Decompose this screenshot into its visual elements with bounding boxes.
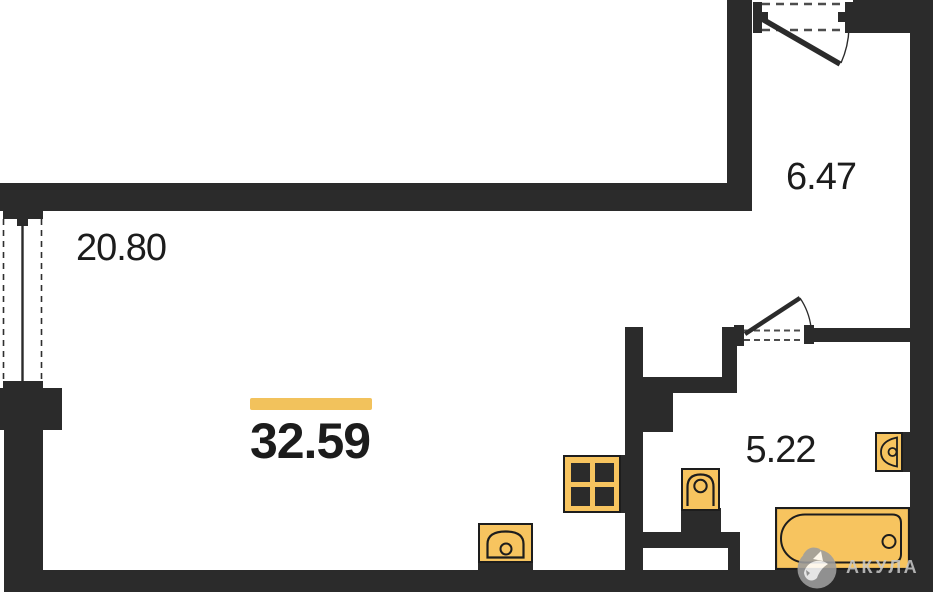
stove-burner: [571, 463, 590, 482]
watermark-text: АКУЛА: [846, 557, 919, 580]
room-area-label-hallway: 6.47: [758, 160, 884, 194]
entrance-door-icon: [757, 4, 849, 64]
entrance-door-leaf: [757, 16, 840, 64]
shark-logo-icon: [795, 546, 839, 590]
toilet-flush: [694, 480, 706, 492]
stove-burner: [595, 487, 614, 506]
bathroom-door-leaf: [745, 298, 800, 334]
kitchen-sink-drain: [501, 544, 512, 555]
total-area-label: 32.59: [228, 418, 392, 464]
washbasin-wall-mount: [902, 432, 912, 472]
bathroom-door-swing-arc: [800, 298, 811, 327]
toilet-icon: [681, 468, 721, 533]
room-area-label-living: 20.80: [58, 231, 184, 265]
floor-plan: 20.80 6.47 5.22 32.59 АКУЛА: [0, 0, 938, 600]
entrance-door-swing-arc: [841, 28, 849, 63]
room-area-label-bathroom: 5.22: [718, 433, 843, 467]
toilet-tank: [681, 508, 721, 533]
stove-burner: [595, 463, 614, 482]
kitchen-sink-icon: [478, 523, 533, 572]
stove-burner: [571, 487, 590, 506]
watermark: АКУЛА: [795, 546, 919, 590]
stove-icon: [563, 455, 627, 513]
bathroom-door-icon: [744, 298, 811, 340]
total-area-highlight-bar: [250, 398, 372, 410]
washbasin-drain: [889, 448, 897, 456]
washbasin-icon: [875, 432, 912, 472]
